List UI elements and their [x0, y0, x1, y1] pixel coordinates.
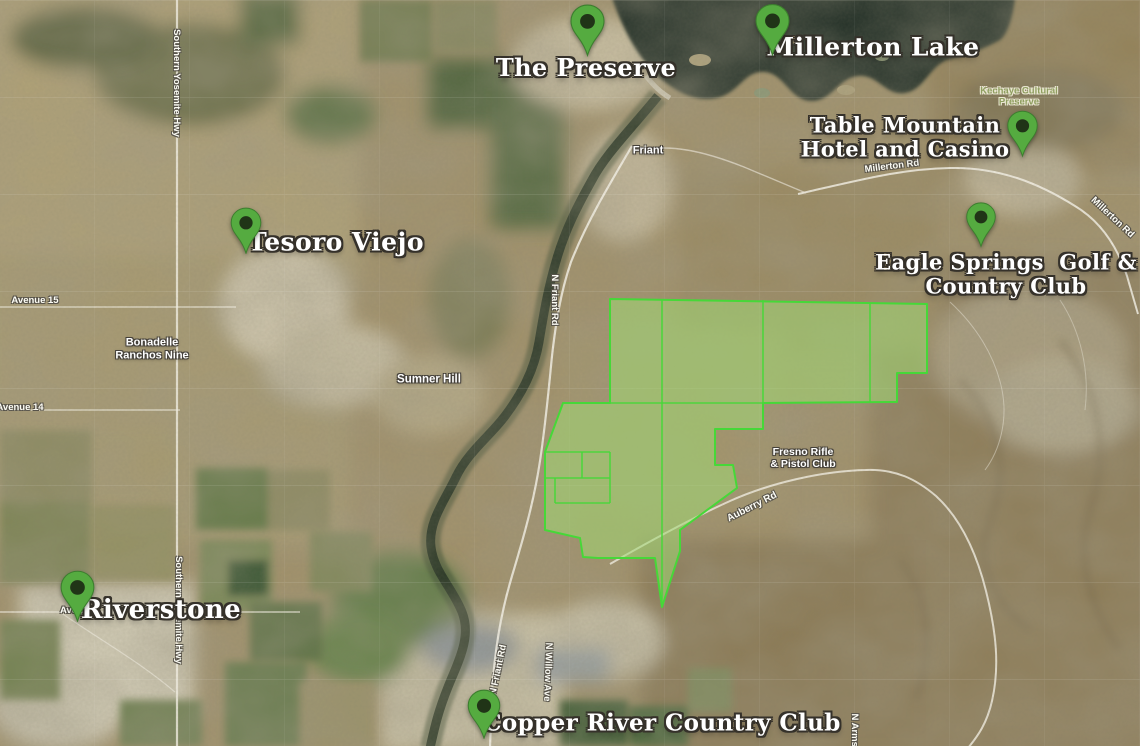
pin-tesoro-viejo[interactable]: [228, 207, 264, 254]
map-pin-icon: [59, 570, 96, 622]
map-pin-icon: [754, 3, 791, 56]
pin-eagle-springs-golf-country-club[interactable]: [965, 201, 997, 248]
map-pin-icon: [1006, 109, 1039, 158]
pin-the-preserve[interactable]: [569, 3, 606, 57]
pin-copper-river-country-club[interactable]: [465, 689, 503, 739]
pin-riverstone[interactable]: [59, 570, 96, 622]
map-pin-icon: [228, 207, 264, 254]
satellite-map-graphic: FriantSumner HillBonadelleRanchos NineFr…: [0, 0, 1140, 746]
pin-millerton-lake[interactable]: [754, 3, 791, 56]
highlighted-area-overlay: [0, 0, 1140, 746]
map-pin-icon: [965, 201, 997, 248]
map-pin-icon: [569, 3, 606, 57]
pin-table-mountain-hotel-and-casino[interactable]: [1006, 109, 1039, 158]
map-pin-icon: [465, 689, 503, 739]
